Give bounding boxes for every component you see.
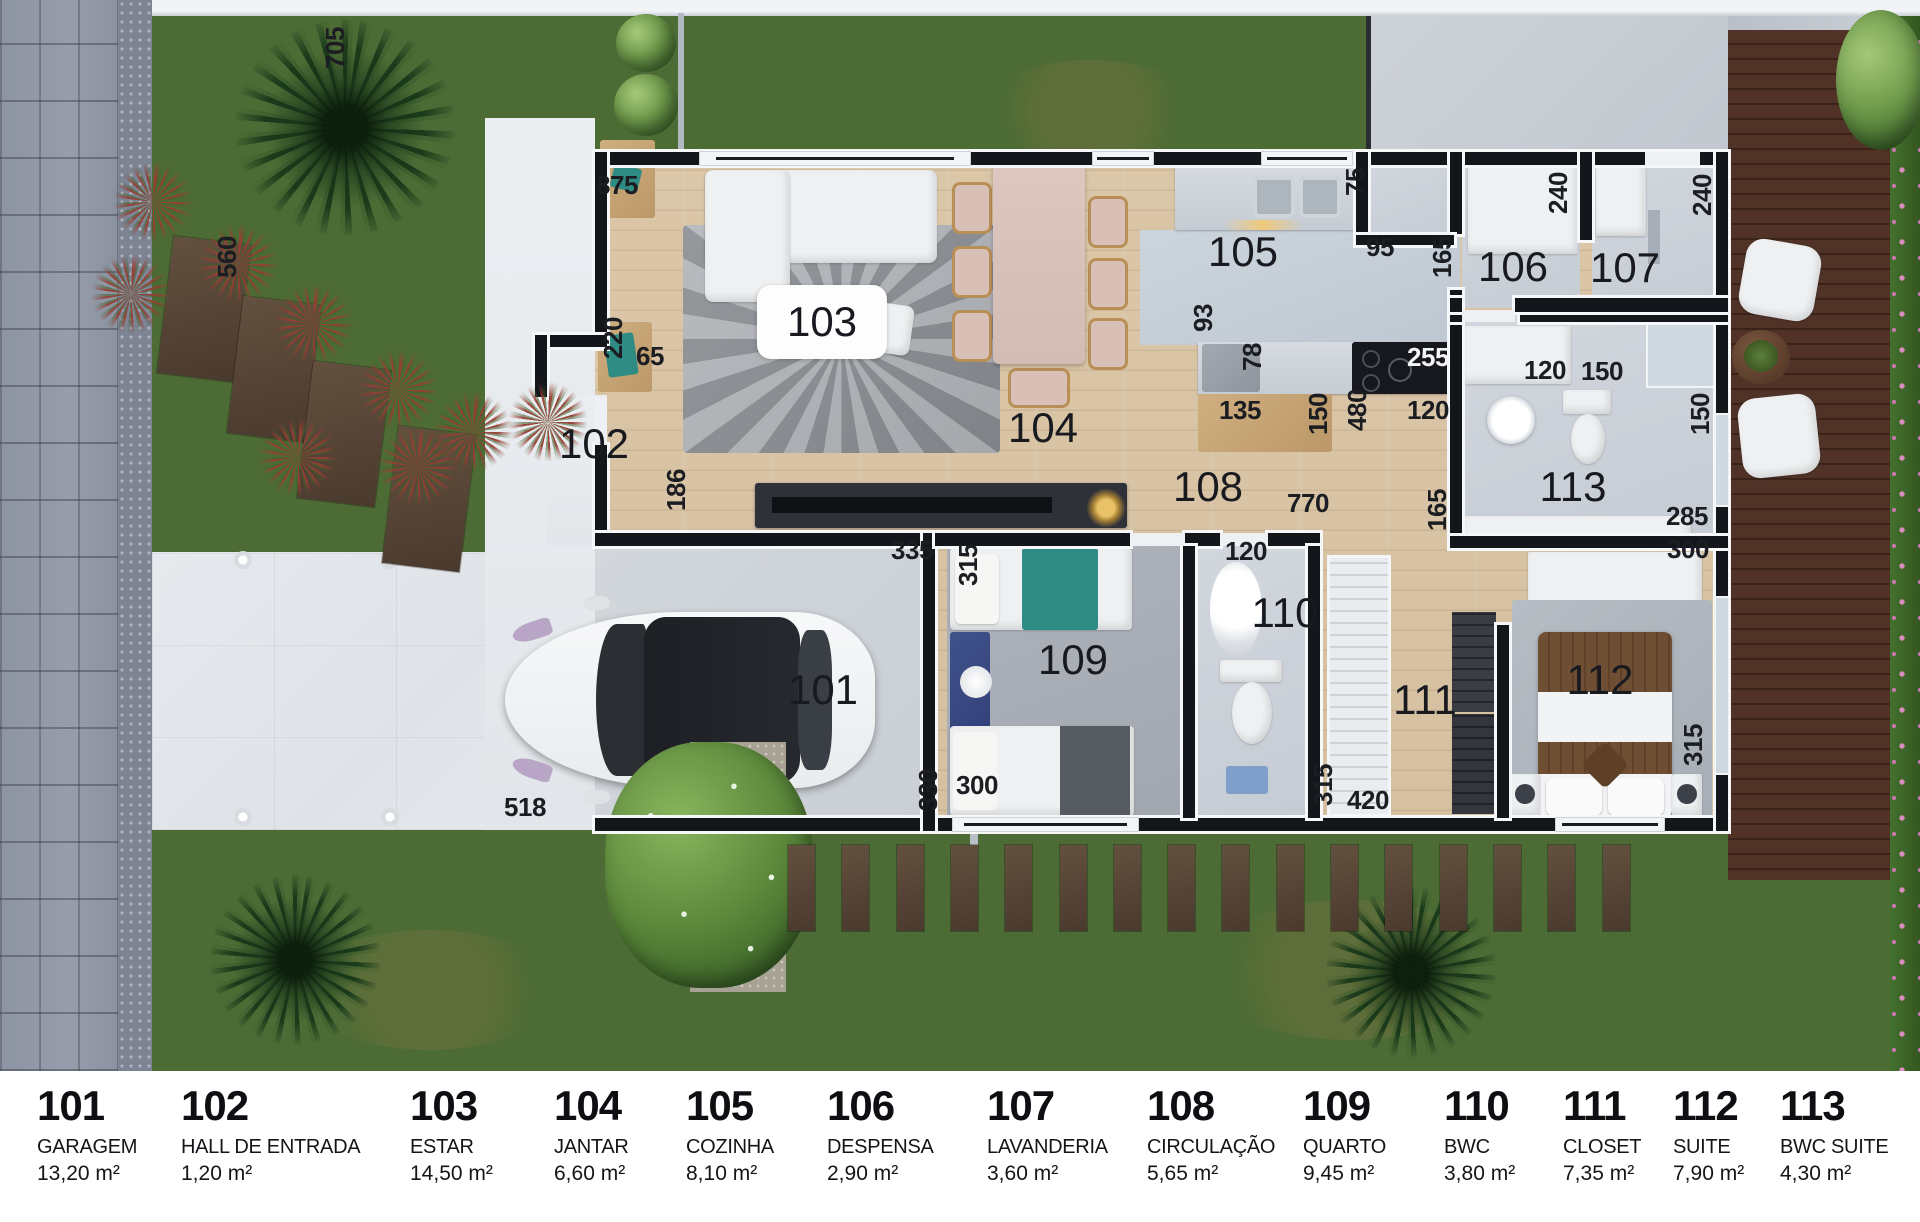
toilet-bowl [1571, 414, 1605, 464]
legend-room-number: 113 [1780, 1085, 1845, 1127]
dimension-label: 560 [214, 236, 240, 278]
stepping-paver [1548, 845, 1575, 931]
stepping-paver [1005, 845, 1032, 931]
legend-room-number: 108 [1147, 1085, 1214, 1127]
dimension-label: 135 [1219, 397, 1261, 423]
red-grass-tuft [355, 350, 441, 430]
legend-room-area: 1,20 m² [181, 1163, 252, 1184]
wall-segment [1580, 152, 1592, 240]
flower-hedge [1890, 16, 1920, 1071]
dimension-label: 150 [1305, 393, 1331, 435]
dimension-label: 150 [1687, 393, 1713, 435]
stepping-paver [1168, 845, 1195, 931]
legend-room-name: GARAGEM [37, 1137, 137, 1157]
dimension-label: 78 [1239, 343, 1265, 371]
room-number-103: 103 [757, 285, 887, 359]
room-number-106: 106 [1478, 246, 1548, 288]
wall-segment [1450, 298, 1462, 312]
dimension-label: 240 [1545, 172, 1571, 214]
burner [1362, 350, 1380, 368]
stepping-paver [1222, 845, 1249, 931]
legend-room-area: 7,35 m² [1563, 1163, 1634, 1184]
red-grass-tuft [110, 162, 196, 242]
dimension-label: 875 [596, 172, 638, 198]
legend-room-name: SUITE [1673, 1137, 1730, 1157]
dimension-label: 330 [915, 769, 941, 811]
dimension-label: 335 [891, 537, 933, 563]
wardrobe-open [1330, 558, 1388, 814]
legend-room-area: 4,30 m² [1780, 1163, 1851, 1184]
dimension-label: 75 [1342, 168, 1368, 196]
flowering-bush [605, 742, 813, 988]
legend-room-area: 14,50 m² [410, 1163, 493, 1184]
legend-room-area: 9,45 m² [1303, 1163, 1374, 1184]
legend-room-name: CIRCULAÇÃO [1147, 1137, 1275, 1157]
window [1556, 818, 1664, 831]
legend-room-area: 3,80 m² [1444, 1163, 1515, 1184]
round-sink [1487, 396, 1535, 444]
dining-chair [952, 246, 992, 298]
legend: 101GARAGEM13,20 m²102HALL DE ENTRADA1,20… [0, 1071, 1920, 1222]
legend-room-number: 107 [987, 1085, 1054, 1127]
legend-room-name: BWC SUITE [1780, 1137, 1888, 1157]
wardrobe-dark [1452, 714, 1496, 814]
tv-screen [772, 497, 1052, 513]
grass-patch [980, 60, 1200, 160]
red-grass-tuft [255, 417, 341, 497]
legend-room-area: 7,90 m² [1673, 1163, 1744, 1184]
wall-segment [1185, 533, 1220, 546]
street-sidewalk [0, 0, 118, 1071]
legend-room-area: 5,65 m² [1147, 1163, 1218, 1184]
stepping-paver [1277, 845, 1304, 931]
stepping-paver [1385, 845, 1412, 931]
legend-room-number: 105 [686, 1085, 753, 1127]
room-number-110: 110 [1252, 592, 1319, 634]
legend-room-name: LAVANDERIA [987, 1137, 1108, 1157]
corner-bush [1836, 10, 1920, 150]
dimension-label: 770 [1287, 490, 1329, 516]
dimension-label: 120 [1524, 357, 1566, 383]
legend-room-number: 104 [554, 1085, 621, 1127]
stepping-paver [1114, 845, 1141, 931]
legend-room-number: 106 [827, 1085, 894, 1127]
stepping-paver [1603, 845, 1630, 931]
wall-segment [1450, 152, 1462, 234]
red-grass-tuft [88, 254, 174, 334]
stepping-paver [1494, 845, 1521, 931]
window [953, 818, 1138, 831]
toilet-bowl [1232, 682, 1272, 744]
dimension-label: 95 [1366, 234, 1394, 260]
dimension-label: 300 [956, 772, 998, 798]
round-bush [614, 74, 678, 136]
legend-room-name: COZINHA [686, 1137, 774, 1157]
stepping-paver [897, 845, 924, 931]
dimension-label: 518 [504, 794, 546, 820]
stepping-paver [1331, 845, 1358, 931]
dimension-label: 255 [1407, 344, 1449, 370]
car-windshield [596, 624, 648, 776]
bed-blanket-gray [1060, 726, 1130, 816]
top-sidewalk [152, 0, 1920, 16]
room-number-105: 105 [1208, 231, 1278, 273]
dimension-label: 150 [1581, 358, 1623, 384]
legend-room-area: 2,90 m² [827, 1163, 898, 1184]
dimension-label: 165 [1424, 489, 1450, 531]
legend-room-area: 3,60 m² [987, 1163, 1058, 1184]
dimension-label: 315 [1310, 764, 1336, 806]
legend-room-number: 110 [1444, 1085, 1509, 1127]
dimension-label: 285 [1666, 503, 1708, 529]
round-bush [616, 14, 676, 72]
legend-room-area: 6,60 m² [554, 1163, 625, 1184]
red-grass-tuft [375, 427, 461, 507]
floor-plan: 7055608752206518693782551351504801207595… [0, 0, 1920, 1071]
legend-room-name: HALL DE ENTRADA [181, 1137, 360, 1157]
legend-room-number: 102 [181, 1085, 248, 1127]
driveway-marker [234, 551, 252, 569]
bed-blanket-teal [1022, 548, 1098, 630]
service-fence [1366, 16, 1371, 152]
kitchen-alcove [1368, 160, 1452, 238]
room-number-111: 111 [1393, 679, 1457, 721]
wall-segment [1515, 298, 1728, 312]
legend-room-number: 103 [410, 1085, 477, 1127]
side-mirror [584, 596, 610, 610]
dining-chair [952, 310, 992, 362]
dining-chair [952, 182, 992, 234]
glass-door [1716, 415, 1728, 505]
room-number-104: 104 [1008, 407, 1078, 449]
floor-plan-screenshot: 7055608752206518693782551351504801207595… [0, 0, 1920, 1222]
room-number-112: 112 [1567, 659, 1634, 701]
dimension-label: 65 [636, 343, 664, 369]
kitchen-sink [1299, 176, 1341, 218]
front-yard-fence [678, 13, 684, 152]
legend-room-number: 109 [1303, 1085, 1370, 1127]
stepping-paver [951, 845, 978, 931]
toilet-tank [1563, 390, 1611, 414]
sidewalk-cobble-edge [118, 0, 152, 1071]
deck-armchair [1736, 236, 1824, 324]
dimension-label: 420 [1347, 787, 1389, 813]
driveway-marker [234, 808, 252, 826]
dimension-label: 315 [1680, 724, 1706, 766]
lamp [1515, 784, 1535, 804]
desk-chair [960, 666, 992, 698]
glass-door [1716, 598, 1728, 773]
door-opening [1130, 533, 1185, 546]
legend-room-name: ESTAR [410, 1137, 474, 1157]
deck-plant [1744, 340, 1778, 372]
laundry-cabinet [1596, 166, 1646, 236]
stepping-paver [1440, 845, 1467, 931]
pillow [1546, 778, 1602, 816]
side-mirror [584, 790, 610, 804]
stepping-paver [1060, 845, 1087, 931]
dimension-label: 240 [1689, 174, 1715, 216]
window [1093, 152, 1153, 165]
window [700, 152, 970, 165]
gold-decor [1086, 488, 1126, 528]
kitchen-sink [1253, 176, 1295, 218]
driveway-marker [381, 808, 399, 826]
legend-room-number: 112 [1673, 1085, 1738, 1127]
legend-room-name: JANTAR [554, 1137, 629, 1157]
stepping-paver [788, 845, 815, 931]
dining-chair [1088, 196, 1128, 248]
bath-mat [1226, 766, 1268, 794]
wall-segment [1497, 625, 1509, 818]
red-grass-tuft [270, 284, 356, 364]
dimension-label: 165 [1429, 236, 1455, 278]
door-opening [1645, 152, 1700, 165]
pillow [1608, 778, 1664, 816]
room-number-101: 101 [788, 669, 858, 711]
legend-room-number: 101 [37, 1085, 104, 1127]
dining-chair [1088, 258, 1128, 310]
wall-segment [1268, 533, 1320, 546]
dimension-label: 186 [663, 469, 689, 511]
dining-chair [1008, 368, 1070, 408]
legend-room-area: 13,20 m² [37, 1163, 120, 1184]
room-number-107: 107 [1590, 247, 1660, 289]
dimension-label: 220 [600, 317, 626, 359]
room-number-109: 109 [1038, 639, 1108, 681]
dining-table [993, 164, 1085, 364]
dimension-label: 480 [1344, 389, 1370, 431]
deck-armchair [1736, 392, 1822, 480]
dimension-label: 120 [1407, 397, 1449, 423]
wardrobe-dark [1452, 612, 1496, 712]
toilet-tank [1220, 660, 1282, 682]
room-number-108: 108 [1173, 466, 1243, 508]
dimension-label: 315 [955, 544, 981, 586]
room-number-113: 113 [1540, 466, 1607, 508]
wall-segment [1183, 546, 1195, 818]
shower [1648, 322, 1716, 386]
sofa-chaise [705, 170, 790, 302]
legend-room-number: 111 [1563, 1085, 1625, 1127]
door-opening [1462, 310, 1515, 322]
dimension-label: 93 [1190, 304, 1216, 332]
stepping-paver [842, 845, 869, 931]
palm-plant [210, 875, 380, 1045]
wall-segment [595, 533, 935, 546]
legend-room-name: CLOSET [1563, 1137, 1641, 1157]
dimension-label: 300 [1667, 536, 1709, 562]
dimension-label: 705 [322, 27, 348, 69]
legend-room-name: DESPENSA [827, 1137, 934, 1157]
dimension-label: 120 [1225, 538, 1267, 564]
service-yard [1370, 16, 1728, 152]
lamp [1677, 784, 1697, 804]
legend-room-area: 8,10 m² [686, 1163, 757, 1184]
legend-room-name: QUARTO [1303, 1137, 1386, 1157]
window [1262, 152, 1352, 165]
dining-chair [1088, 318, 1128, 370]
legend-room-name: BWC [1444, 1137, 1490, 1157]
room-number-102: 102 [559, 423, 629, 465]
